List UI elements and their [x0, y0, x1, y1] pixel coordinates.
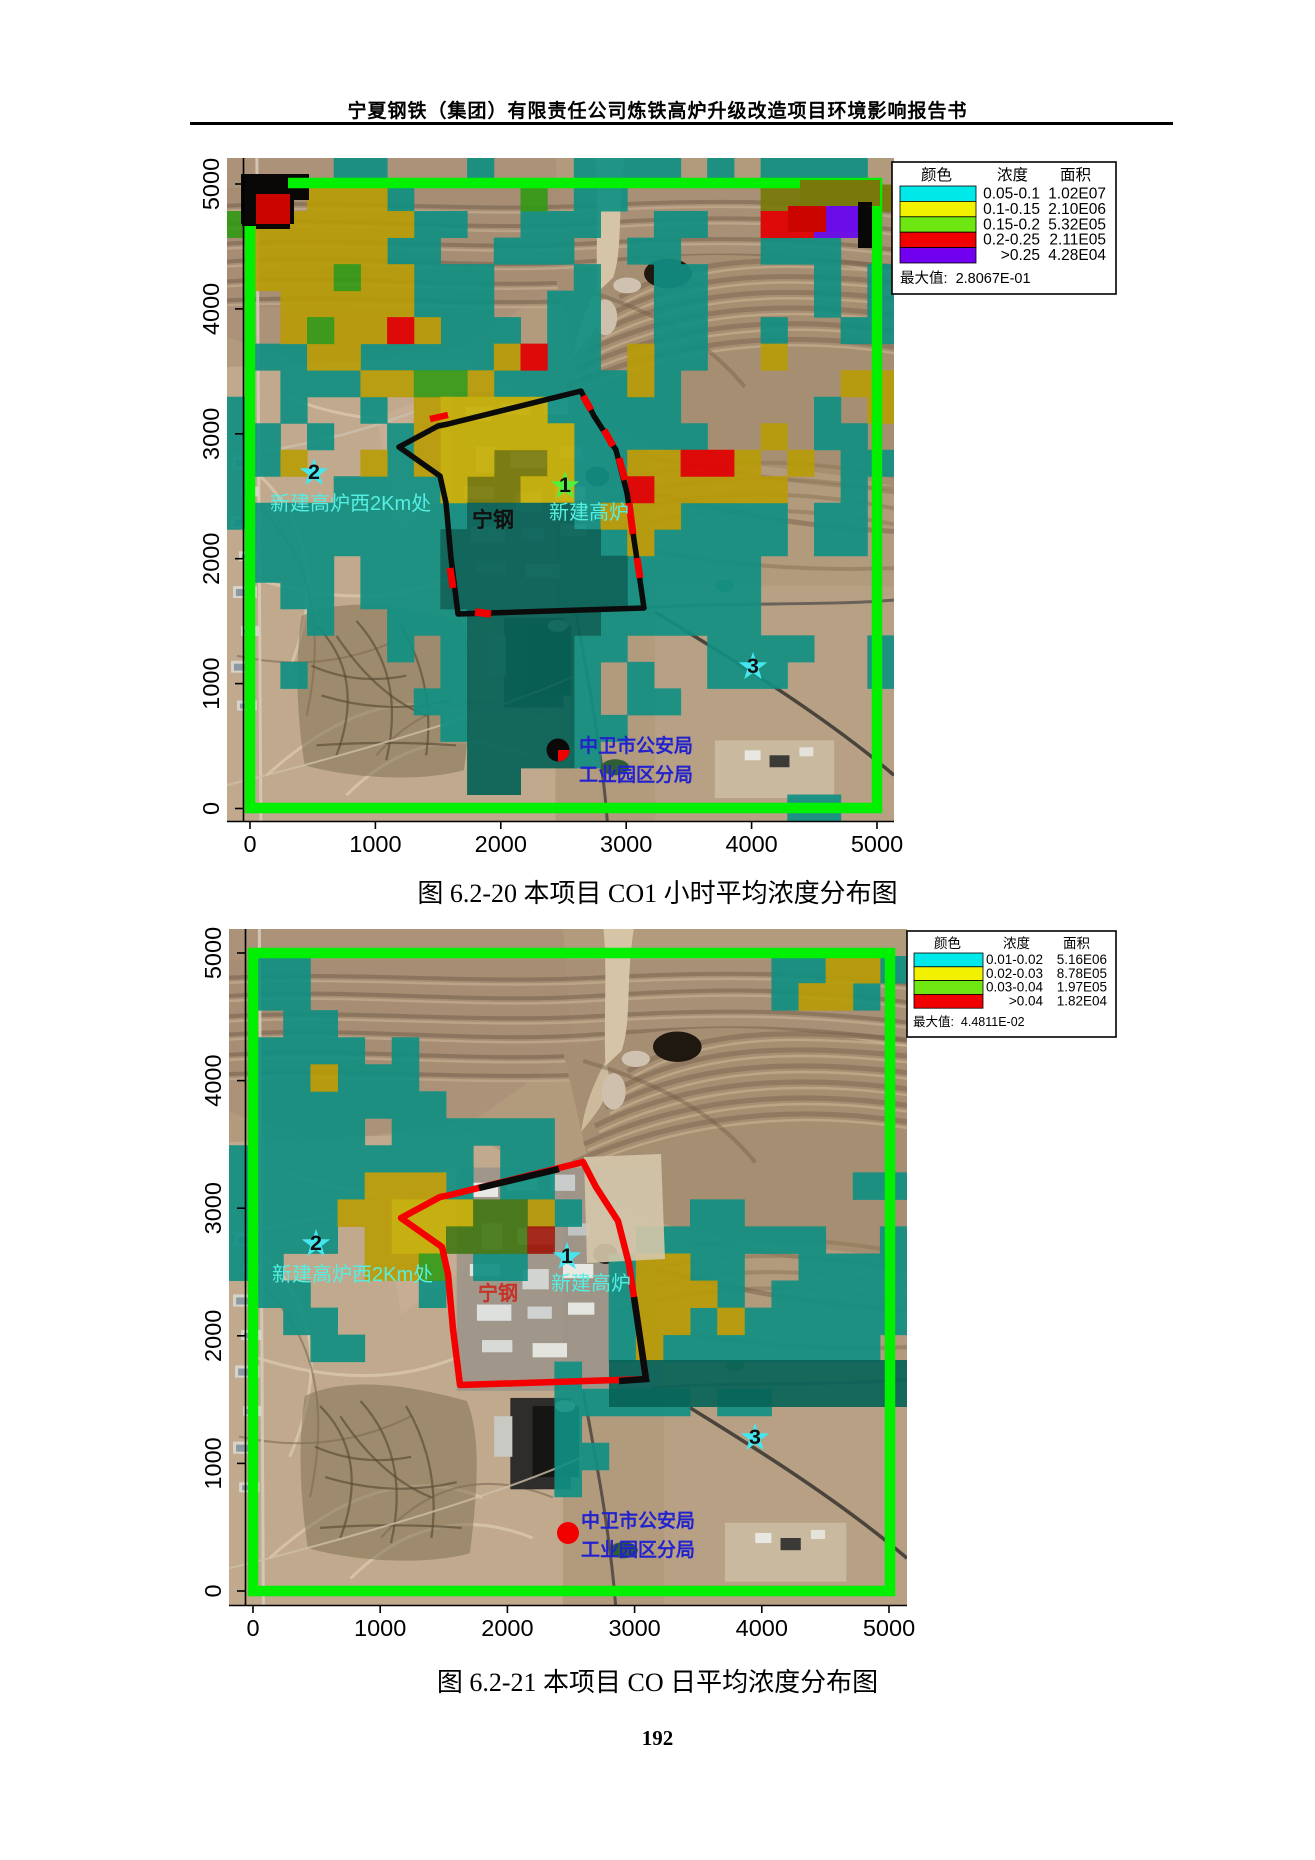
svg-text:新建高炉: 新建高炉 [551, 1272, 631, 1295]
svg-text:1000: 1000 [354, 1615, 406, 1641]
svg-text:2: 2 [308, 460, 320, 484]
svg-text:0: 0 [200, 1584, 226, 1597]
svg-text:中卫市公安局: 中卫市公安局 [579, 734, 693, 757]
svg-text:2: 2 [310, 1231, 322, 1255]
svg-text:3: 3 [747, 654, 759, 678]
svg-text:4000: 4000 [725, 831, 777, 857]
svg-text:面积: 面积 [1060, 166, 1091, 184]
svg-text:工业园区分局: 工业园区分局 [581, 1539, 695, 1561]
svg-text:5000: 5000 [198, 158, 224, 210]
svg-text:4000: 4000 [198, 283, 224, 335]
svg-text:8.78E05: 8.78E05 [1057, 966, 1107, 981]
svg-text:浓度: 浓度 [997, 166, 1028, 184]
svg-text:1.97E05: 1.97E05 [1057, 980, 1107, 995]
svg-text:1000: 1000 [349, 831, 401, 857]
svg-text:2000: 2000 [475, 831, 527, 857]
svg-text:5000: 5000 [200, 927, 226, 979]
svg-text:3000: 3000 [200, 1182, 226, 1234]
svg-text:最大值: 4.4811E-02: 最大值: 4.4811E-02 [913, 1014, 1025, 1029]
svg-text:3000: 3000 [608, 1615, 660, 1641]
svg-text:新建高炉西2Km处: 新建高炉西2Km处 [272, 1263, 433, 1286]
svg-text:5.16E06: 5.16E06 [1057, 952, 1107, 967]
svg-text:2000: 2000 [200, 1310, 226, 1362]
svg-text:0: 0 [243, 831, 256, 857]
svg-text:工业园区分局: 工业园区分局 [579, 764, 693, 786]
svg-text:>0.04: >0.04 [1009, 993, 1044, 1008]
svg-text:浓度: 浓度 [1003, 936, 1030, 951]
svg-text:新建高炉西2Km处: 新建高炉西2Km处 [270, 492, 431, 515]
svg-text:最大值: 2.8067E-01: 最大值: 2.8067E-01 [900, 270, 1031, 287]
svg-text:1.82E04: 1.82E04 [1057, 993, 1108, 1008]
svg-text:2000: 2000 [481, 1615, 533, 1641]
svg-text:颜色: 颜色 [934, 935, 961, 951]
svg-text:0.01-0.02: 0.01-0.02 [986, 952, 1043, 967]
svg-text:1000: 1000 [200, 1437, 226, 1489]
svg-text:0: 0 [198, 802, 224, 815]
svg-text:颜色: 颜色 [921, 166, 952, 184]
svg-text:1000: 1000 [198, 657, 224, 709]
svg-text:0.03-0.04: 0.03-0.04 [986, 980, 1044, 995]
svg-text:0: 0 [246, 1615, 259, 1641]
svg-text:5000: 5000 [851, 831, 903, 857]
svg-text:2000: 2000 [198, 533, 224, 585]
svg-text:3000: 3000 [600, 831, 652, 857]
svg-text:4000: 4000 [200, 1054, 226, 1106]
svg-text:4.28E04: 4.28E04 [1048, 247, 1106, 264]
svg-text:5000: 5000 [863, 1615, 915, 1641]
svg-text:3000: 3000 [198, 408, 224, 460]
svg-text:面积: 面积 [1063, 936, 1090, 951]
svg-text:>0.25: >0.25 [1001, 247, 1040, 264]
svg-text:4000: 4000 [736, 1615, 788, 1641]
svg-text:1: 1 [561, 1244, 573, 1268]
svg-text:宁钢: 宁钢 [472, 508, 514, 532]
svg-text:宁钢: 宁钢 [478, 1281, 518, 1305]
svg-text:0.02-0.03: 0.02-0.03 [986, 966, 1043, 981]
svg-text:3: 3 [749, 1425, 761, 1449]
svg-text:中卫市公安局: 中卫市公安局 [581, 1509, 695, 1532]
svg-text:新建高炉: 新建高炉 [549, 501, 629, 524]
svg-text:1: 1 [559, 473, 571, 497]
